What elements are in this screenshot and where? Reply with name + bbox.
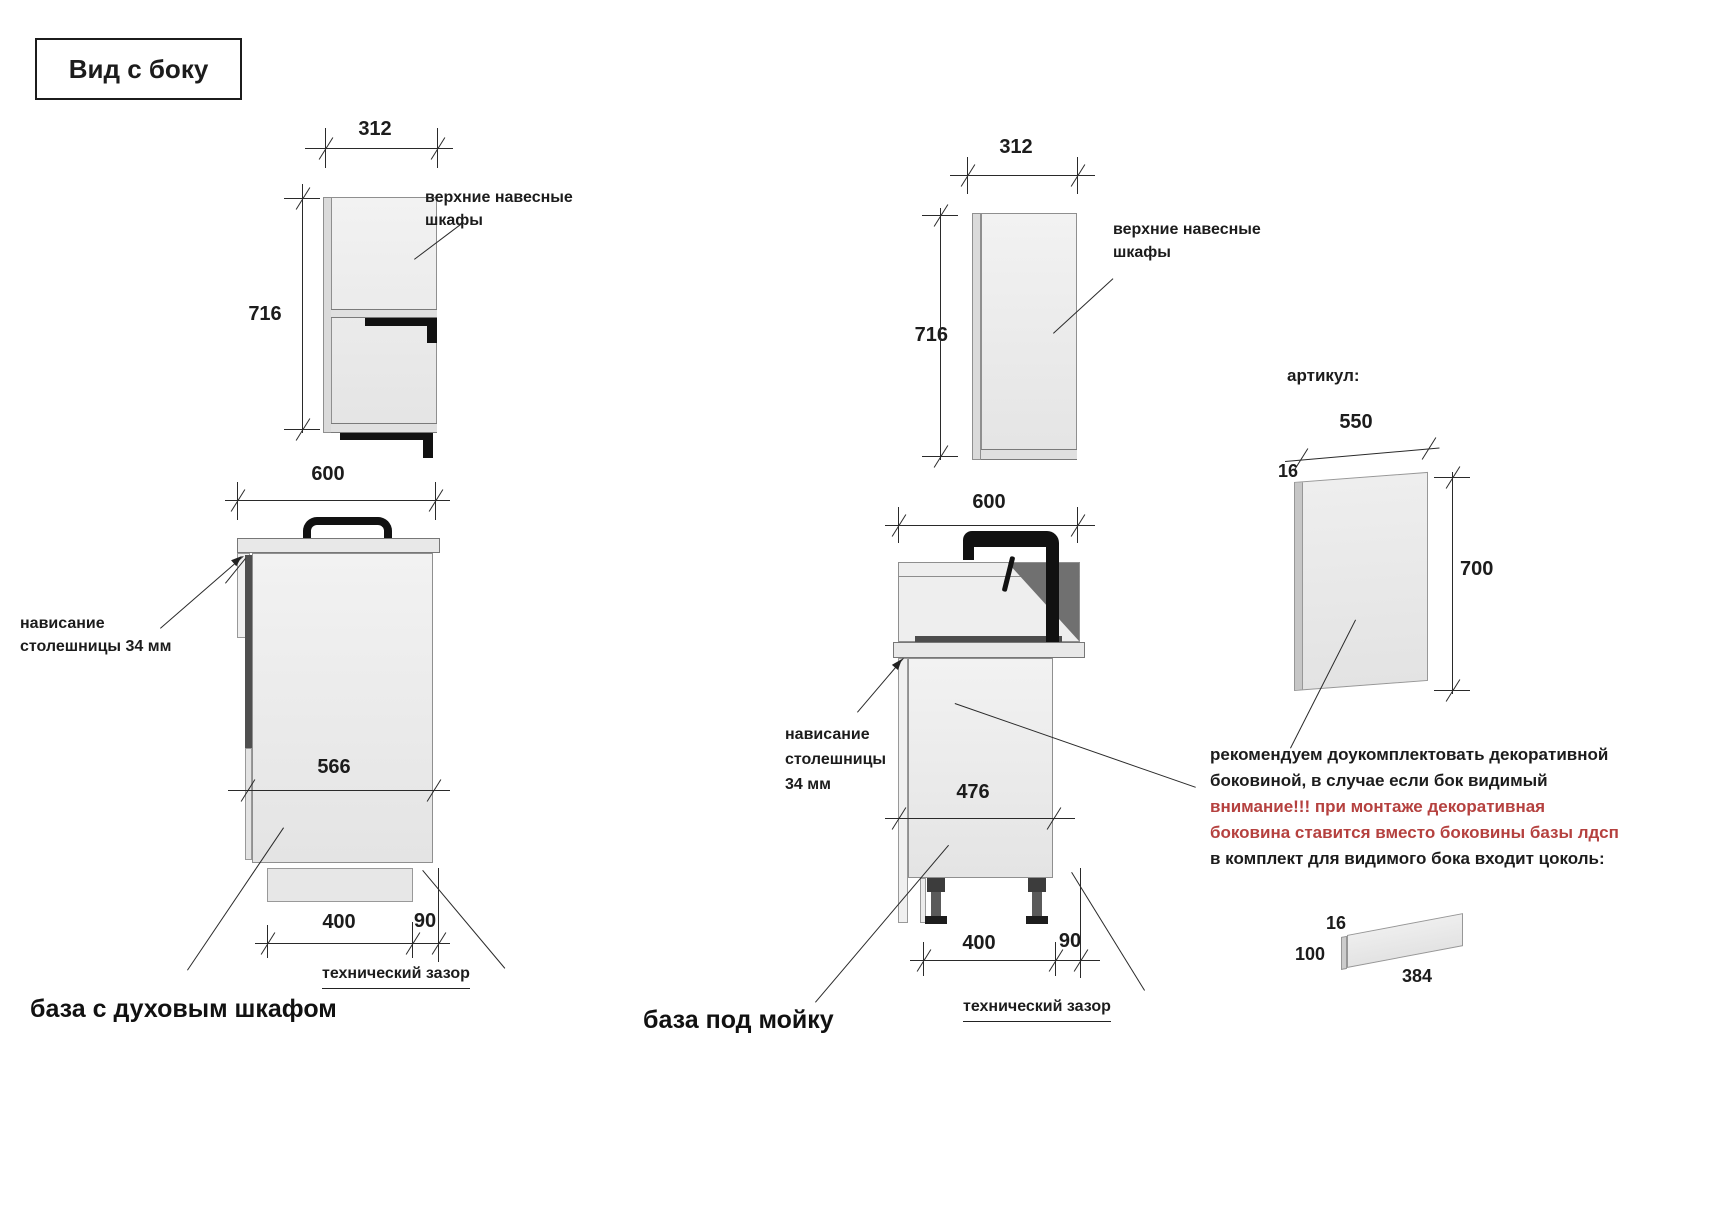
panel-thickness-label: 16	[1278, 461, 1318, 482]
articul-label: артикул:	[1287, 364, 1360, 387]
upper-cabinets-label: верхние навесные шкафы	[425, 186, 573, 232]
faucet	[963, 547, 974, 560]
oven-base-plinth	[267, 868, 413, 902]
upper-cabinets-label-line2: шкафы	[425, 209, 573, 232]
dim-line	[950, 175, 1095, 176]
sink-upper-height-label: 716	[868, 324, 948, 347]
dim-line	[1452, 472, 1453, 694]
leg-front	[927, 878, 945, 892]
panel-note-text: рекомендуем доукомплектовать декоративно…	[1210, 742, 1619, 872]
oven-back-gap-label: 90	[405, 910, 445, 933]
tech-gap-label: технический зазор	[322, 962, 470, 989]
plinth-board	[1347, 913, 1463, 968]
leg-front	[931, 892, 941, 916]
leg-front	[925, 916, 947, 924]
view-title-box: Вид с боку	[35, 38, 242, 100]
panel-width-label: 550	[1316, 411, 1396, 434]
dim-line	[1285, 447, 1439, 462]
upper-cabinets-label-line1: верхние навесные	[1113, 218, 1261, 241]
sink-front-edge	[898, 658, 908, 923]
drawing-canvas: Вид с боку 312 716 верхние навесные шкаф…	[0, 0, 1726, 1222]
view-title: Вид с боку	[69, 54, 209, 85]
overhang-label-line2: столешницы	[785, 747, 886, 772]
dim-line	[910, 960, 1100, 961]
oven-upper-height-label: 716	[235, 303, 295, 326]
shelf-bracket	[365, 318, 437, 326]
oven-base-countertop	[237, 538, 440, 553]
dim-line	[225, 500, 450, 501]
sink-base-unit-label: база под мойку	[643, 1006, 834, 1035]
tech-gap-label: технический зазор	[963, 995, 1111, 1022]
sink-back-gap-label: 90	[1050, 930, 1090, 953]
leg-back	[1028, 878, 1046, 892]
note-text-line1: рекомендуем доукомплектовать декоративно…	[1210, 742, 1619, 768]
cabinet-handle	[303, 517, 392, 539]
upper-cabinets-label-line2: шкафы	[1113, 241, 1261, 264]
sink-upper-width-label: 312	[976, 136, 1056, 159]
upper-cabinets-label-line1: верхние навесные	[425, 186, 573, 209]
sink-base-depth-label: 476	[933, 781, 1013, 804]
overhang-label: нависание столешницы 34 мм	[20, 612, 171, 658]
leg-back	[1026, 916, 1048, 924]
decor-panel	[1294, 472, 1428, 691]
bottom-bracket	[423, 440, 433, 458]
oven-base-depth-label: 566	[294, 756, 374, 779]
oven-upper-bottom-shelf	[331, 423, 437, 433]
sink-base-width-label: 600	[949, 491, 1029, 514]
warning-text-line2: боковина ставится вместо боковины базы л…	[1210, 820, 1619, 846]
oven-base-unit-label: база с духовым шкафом	[30, 995, 337, 1024]
oven-base-body	[252, 553, 433, 863]
overhang-label-line3: 34 мм	[785, 772, 886, 797]
dim-line	[885, 818, 1075, 819]
oven-base-width-label: 600	[288, 463, 368, 486]
sink-upper-back-panel	[972, 213, 981, 460]
extension-line	[412, 922, 413, 958]
note-text-line3: в комплект для видимого бока входит цоко…	[1210, 846, 1619, 872]
oven-upper-shelf	[331, 309, 437, 318]
oven-plinth-depth-label: 400	[299, 911, 379, 934]
oven-door-gap-strip	[245, 555, 252, 748]
dim-line	[305, 148, 453, 149]
warning-text-line1: внимание!!! при монтаже декоративная	[1210, 794, 1619, 820]
overhang-label-line1: нависание	[785, 722, 886, 747]
sink-plinth-depth-label: 400	[939, 932, 1019, 955]
dim-line	[302, 184, 303, 433]
upper-cabinets-label: верхние навесные шкафы	[1113, 218, 1261, 264]
plinth-length-label: 384	[1392, 966, 1442, 987]
dim-line	[255, 943, 450, 944]
bottom-bracket	[340, 433, 433, 440]
overhang-label: нависание столешницы 34 мм	[785, 722, 886, 797]
leg-back	[1032, 892, 1042, 916]
plinth-thickness-label: 16	[1316, 913, 1356, 934]
sink-base-body	[908, 658, 1053, 878]
panel-height-label: 700	[1460, 558, 1520, 581]
extension-line	[438, 868, 439, 962]
sink-upper-cabinet-body	[981, 213, 1077, 460]
faucet	[1046, 543, 1059, 642]
oven-front-lower-strip	[245, 748, 252, 860]
dim-line	[940, 208, 941, 460]
sink-countertop	[893, 642, 1085, 658]
sink-upper-bottom-edge	[981, 449, 1077, 460]
dim-line	[228, 790, 450, 791]
decor-panel-edge	[1295, 482, 1303, 690]
shelf-bracket	[427, 326, 437, 343]
oven-upper-width-label: 312	[335, 118, 415, 141]
note-text-line2: боковиной, в случае если бок видимый	[1210, 768, 1619, 794]
overhang-label-line1: нависание	[20, 612, 171, 635]
faucet	[963, 531, 1059, 547]
dim-line	[885, 525, 1095, 526]
plinth-height-label: 100	[1285, 944, 1335, 965]
leader-line	[160, 556, 244, 629]
overhang-label-line2: столешницы 34 мм	[20, 635, 171, 658]
